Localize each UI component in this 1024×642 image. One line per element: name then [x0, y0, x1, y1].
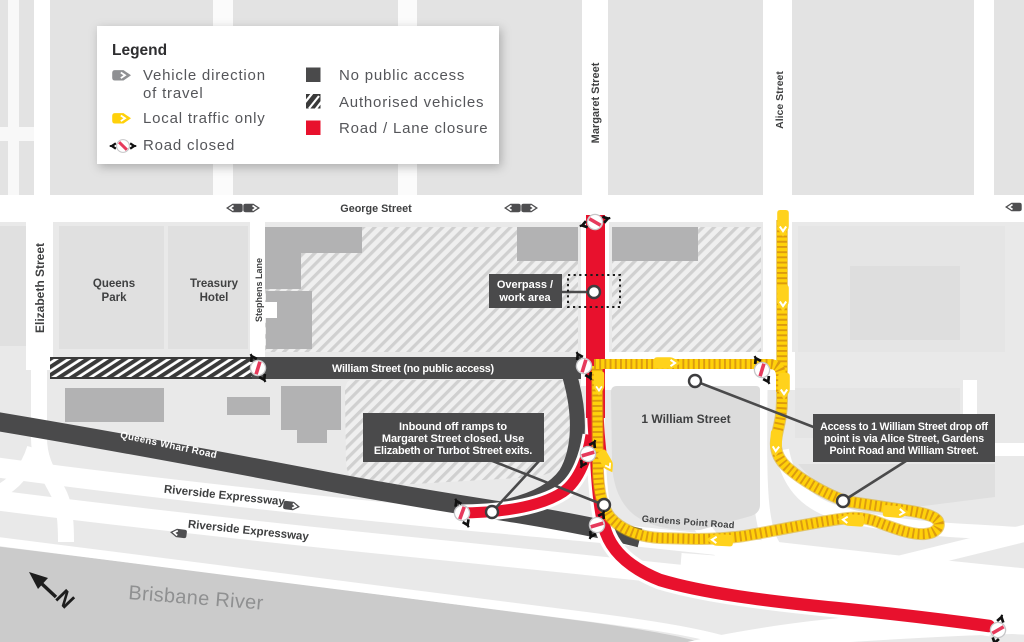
svg-text:Point Road and William Street.: Point Road and William Street. — [829, 445, 978, 457]
svg-text:point is via Alice Street, Gar: point is via Alice Street, Gardens — [824, 433, 984, 445]
svg-text:George Street: George Street — [340, 203, 412, 215]
svg-text:Stephens Lane: Stephens Lane — [254, 258, 264, 322]
svg-text:Overpass /: Overpass / — [497, 279, 553, 291]
svg-text:Treasury: Treasury — [190, 278, 239, 290]
svg-text:Elizabeth or Turbot Street exi: Elizabeth or Turbot Street exits. — [374, 445, 532, 457]
svg-text:Alice Street: Alice Street — [774, 71, 786, 129]
svg-text:Road closed: Road closed — [143, 137, 235, 154]
svg-text:Authorised vehicles: Authorised vehicles — [339, 94, 484, 111]
svg-text:of travel: of travel — [143, 85, 204, 102]
svg-text:No public access: No public access — [339, 67, 465, 84]
svg-text:Margaret Street: Margaret Street — [590, 62, 602, 143]
svg-text:Access to 1 William Street dro: Access to 1 William Street drop off — [820, 421, 988, 433]
svg-text:Margaret Street closed. Use: Margaret Street closed. Use — [382, 433, 524, 445]
svg-text:Local traffic only: Local traffic only — [143, 110, 266, 127]
svg-text:1 William Street: 1 William Street — [641, 412, 730, 426]
svg-text:Vehicle direction: Vehicle direction — [143, 67, 266, 84]
svg-text:work area: work area — [498, 292, 551, 304]
svg-text:Road / Lane closure: Road / Lane closure — [339, 120, 488, 137]
svg-text:William Street (no public acce: William Street (no public access) — [332, 363, 495, 375]
svg-text:Queens: Queens — [93, 278, 135, 290]
svg-text:Legend: Legend — [112, 42, 167, 59]
svg-text:Hotel: Hotel — [200, 292, 229, 304]
svg-text:Park: Park — [102, 292, 128, 304]
svg-text:Elizabeth Street: Elizabeth Street — [33, 243, 47, 333]
svg-text:Inbound off ramps to: Inbound off ramps to — [399, 421, 507, 433]
